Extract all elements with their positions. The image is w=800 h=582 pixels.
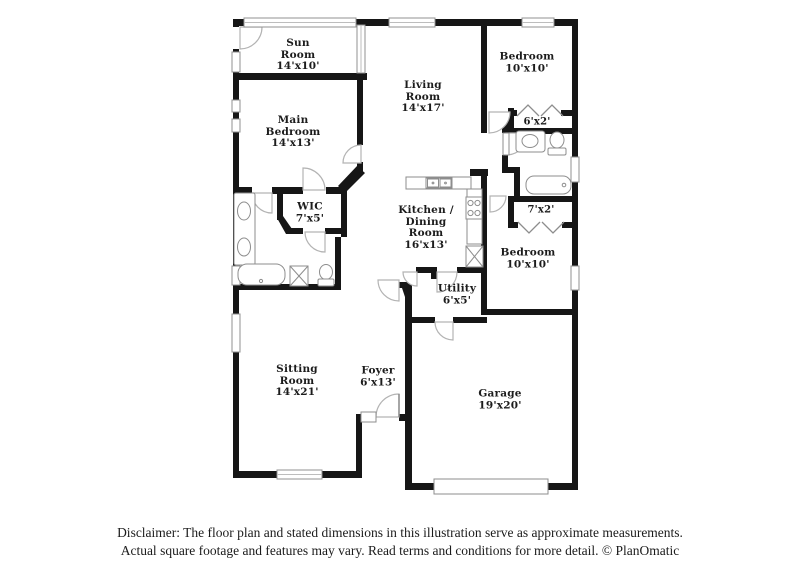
- window-hallbath-right: [571, 157, 579, 182]
- wall-entry-nook: [356, 414, 362, 478]
- wall-sun-divider: [233, 73, 367, 80]
- main-bath-sink-1: [238, 202, 251, 220]
- wall-wic-right: [341, 187, 347, 237]
- wic-door: [305, 232, 325, 252]
- disclaimer-line-1: Disclaimer: The floor plan and stated di…: [0, 524, 800, 542]
- floor-plan-drawing: [0, 0, 800, 582]
- main-bedroom-hall-door: [303, 168, 325, 190]
- wall-wic-top-b: [272, 187, 303, 194]
- utility-door-south: [435, 322, 453, 340]
- window-mainbr-left-2: [232, 119, 240, 132]
- hall-bath-tub-faucet: [562, 183, 566, 187]
- closet6-bifold-doors: [517, 105, 539, 116]
- stove-burner: [468, 210, 473, 215]
- window-bedroom2-right: [571, 266, 579, 290]
- kitchen-sink-drain: [432, 182, 434, 184]
- wall-exterior-right: [572, 19, 578, 490]
- closet7-bifold-doors: [542, 222, 564, 233]
- wall-utility-top-r: [457, 267, 487, 273]
- main-bath-tub-faucet: [259, 279, 262, 282]
- stove-burner: [475, 200, 480, 205]
- disclaimer-line-2: Actual square footage and features may v…: [0, 542, 800, 560]
- bedroom2-door: [490, 196, 506, 212]
- stove-burner: [475, 210, 480, 215]
- front-door-swing: [376, 394, 399, 417]
- wall-closet6-stub-l: [510, 110, 517, 116]
- floor-plan-image: Sun Room 14'x10' Living Room 14'x17' Bed…: [0, 0, 800, 582]
- main-bath-toilet-bowl: [320, 265, 333, 280]
- wall-exterior-left-top: [233, 19, 239, 27]
- wall-utility-top-stub: [431, 267, 437, 279]
- hall-bath-sink: [522, 135, 538, 148]
- wall-utility-top-l: [416, 267, 432, 273]
- disclaimer-text: Disclaimer: The floor plan and stated di…: [0, 524, 800, 559]
- fixtures-layer: [234, 105, 571, 494]
- kitchen-sink-drain: [445, 182, 447, 184]
- wall-garage-left: [405, 297, 412, 490]
- utility-door-north: [437, 272, 457, 292]
- wall-tub-alcove-v: [514, 167, 520, 196]
- sun-room-door: [240, 27, 262, 49]
- window-sunroom-left: [232, 52, 240, 72]
- walls-layer: [233, 19, 578, 490]
- window-mainbr-left-1: [232, 100, 240, 112]
- garage-door: [434, 479, 548, 494]
- window-sitting-left: [232, 314, 240, 352]
- hall-bath-toilet-bowl: [550, 132, 564, 148]
- wall-closet7-stub-l: [508, 222, 518, 228]
- hall-bath-toilet-tank: [548, 148, 566, 155]
- closet7-bifold-doors: [518, 222, 540, 233]
- wall-utility-bottom-l: [411, 317, 435, 323]
- foyer-hall-door: [378, 280, 399, 301]
- wall-bath1-bottom: [508, 196, 578, 202]
- wall-utility-bottom-r: [453, 317, 487, 323]
- stove-burner: [468, 200, 473, 205]
- main-bath-toilet-tank: [318, 279, 334, 286]
- wall-wic-left: [277, 194, 283, 220]
- main-bath-sink-2: [238, 238, 251, 256]
- main-bedroom-entry-door: [343, 145, 361, 163]
- wall-bedroom2-bottom: [481, 309, 578, 315]
- wall-hall-right: [335, 237, 341, 290]
- front-door-sill: [361, 412, 376, 422]
- hall-bath-door-leaf: [503, 133, 509, 155]
- wall-wic-bottom-a: [286, 228, 303, 234]
- wall-living-divider: [481, 19, 487, 133]
- closet6-bifold-doors: [541, 105, 563, 116]
- wall-mainbr-right: [357, 73, 363, 145]
- stove: [466, 197, 482, 219]
